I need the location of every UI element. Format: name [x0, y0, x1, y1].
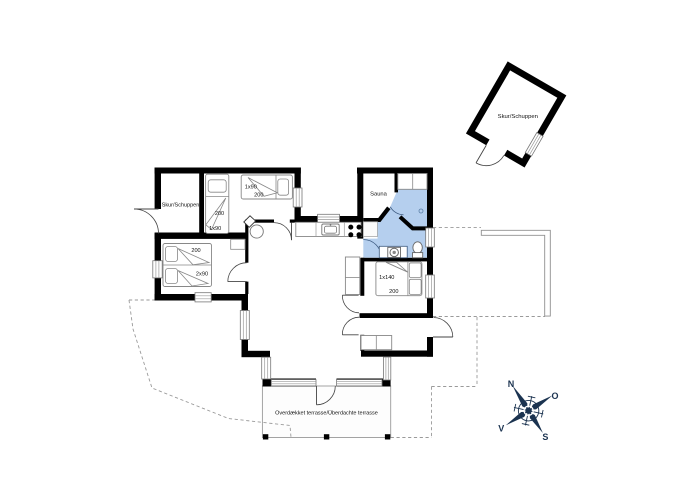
svg-text:1x90: 1x90	[209, 226, 221, 232]
svg-text:V: V	[498, 424, 504, 434]
svg-text:S: S	[542, 432, 548, 442]
svg-text:Skur/Schuppen: Skur/Schuppen	[162, 202, 200, 208]
svg-text:Overdækket terrasse/Überdachte: Overdækket terrasse/Überdachte terrasse	[275, 410, 378, 417]
svg-text:200: 200	[389, 289, 398, 295]
svg-text:200: 200	[215, 211, 224, 217]
svg-text:O: O	[551, 391, 558, 401]
svg-text:200: 200	[254, 192, 263, 198]
svg-text:N: N	[508, 379, 515, 389]
svg-text:1x140: 1x140	[379, 275, 394, 281]
svg-text:1x90: 1x90	[245, 184, 257, 190]
svg-text:2x90: 2x90	[196, 271, 208, 277]
svg-text:Skur/Schuppen: Skur/Schuppen	[498, 114, 538, 120]
svg-text:Sauna: Sauna	[370, 191, 388, 197]
svg-text:200: 200	[191, 248, 200, 254]
